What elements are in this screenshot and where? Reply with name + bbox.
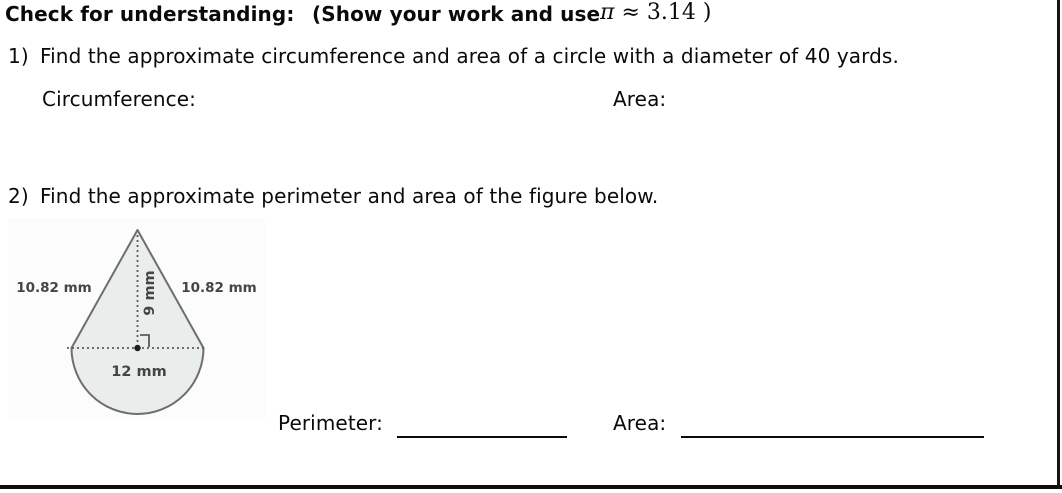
closing-paren: ) — [703, 0, 712, 25]
right-border-rule — [1057, 0, 1060, 489]
question1-number: 1) — [8, 44, 29, 68]
question2-area-label: Area: — [613, 411, 666, 435]
question1-area-label: Area: — [613, 87, 666, 111]
question2-number: 2) — [8, 184, 29, 208]
question2-text: Find the approximate perimeter and area … — [40, 184, 658, 208]
perimeter-answer-blank — [397, 436, 567, 438]
pi-symbol: π — [600, 0, 614, 25]
question1-text: Find the approximate circumference and a… — [40, 44, 899, 68]
page-title: Check for understanding: — [5, 2, 294, 26]
pi-approx-value: ≈ 3.14 — [621, 0, 695, 25]
teardrop-figure: 10.82 mm 10.82 mm 9 mm 12 mm — [8, 218, 265, 420]
left-side-length-label: 10.82 mm — [16, 280, 92, 296]
figure-image: 10.82 mm 10.82 mm 9 mm 12 mm — [8, 218, 265, 420]
instruction-text: (Show your work and use — [312, 2, 600, 26]
area-answer-blank — [681, 436, 984, 438]
question2-perimeter-label: Perimeter: — [278, 411, 383, 435]
pi-expression: π ≈ 3.14 ) — [600, 0, 711, 25]
center-dot — [134, 345, 140, 351]
question1-circumference-label: Circumference: — [42, 87, 196, 111]
base-length-label: 12 mm — [111, 364, 166, 380]
right-side-length-label: 10.82 mm — [181, 280, 257, 296]
worksheet-page: Check for understanding: (Show your work… — [0, 0, 1062, 493]
bottom-border-rule — [0, 485, 1062, 489]
height-length-label: 9 mm — [142, 270, 158, 315]
